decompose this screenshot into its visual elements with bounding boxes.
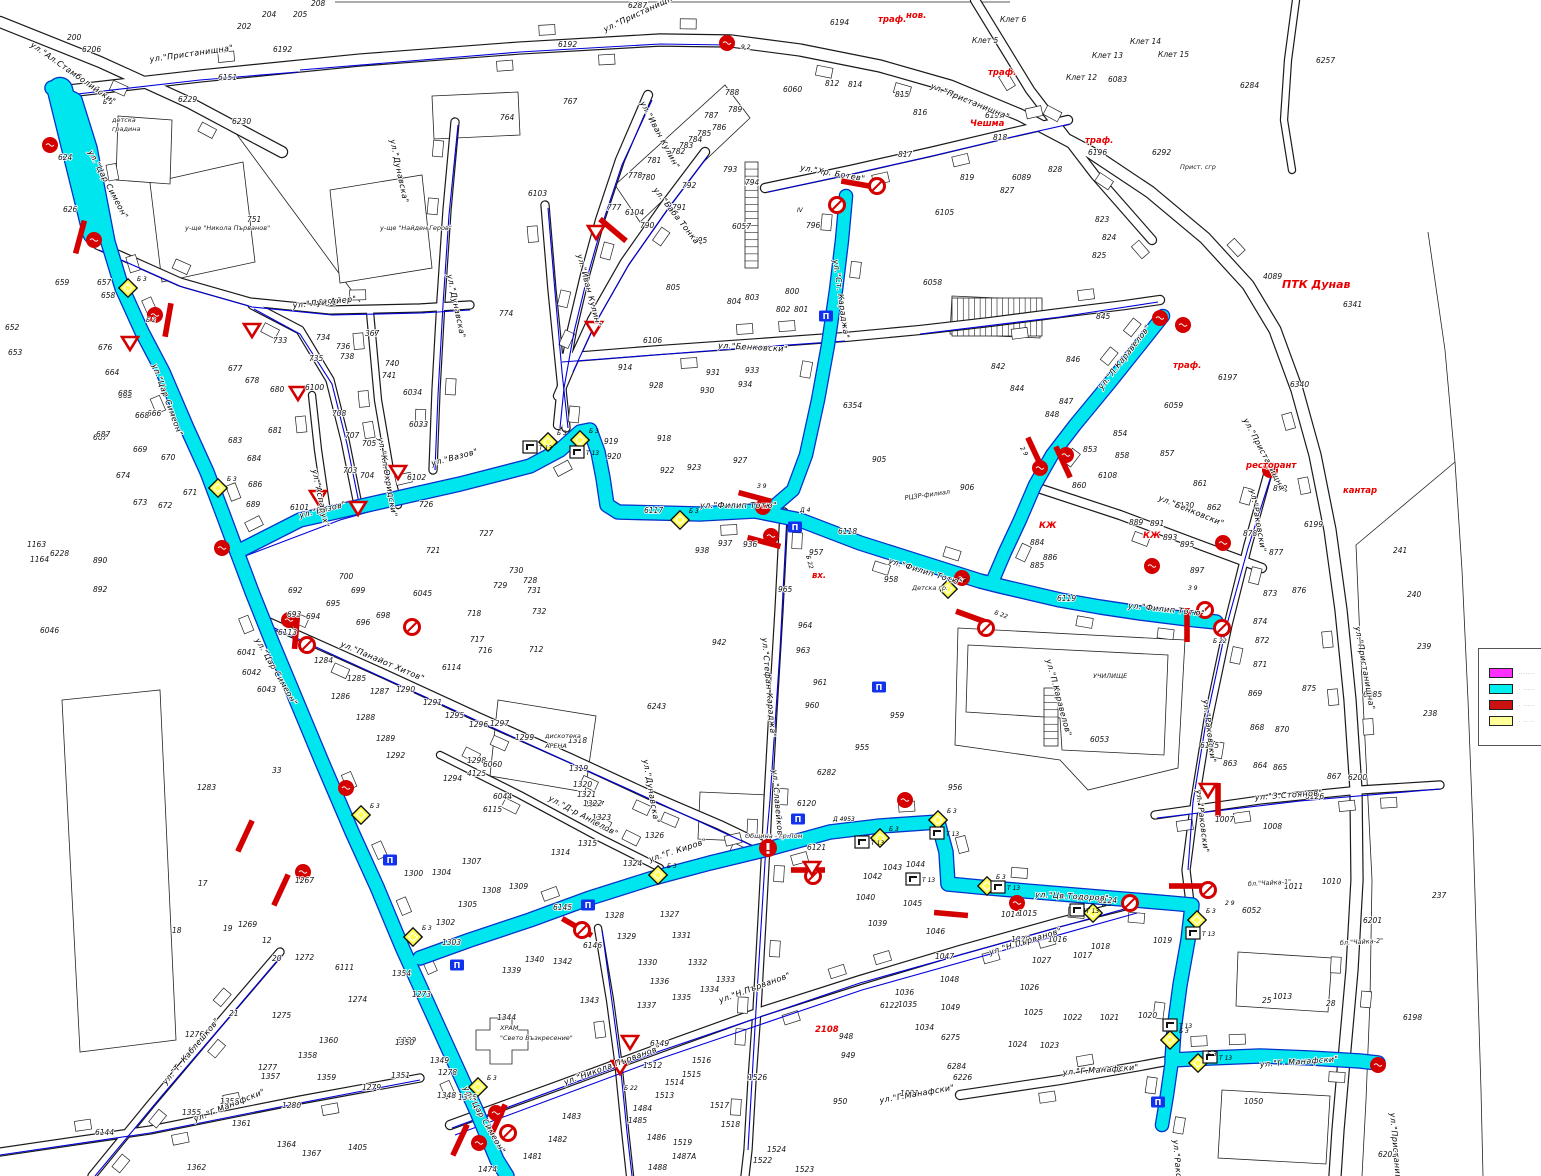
parcel-number: 1300 xyxy=(404,869,423,878)
sign-code-label: Д 4953 xyxy=(832,816,855,823)
warning-sign xyxy=(759,839,777,857)
parcel-number: 1482 xyxy=(548,1135,567,1144)
yield-sign xyxy=(122,337,138,350)
parking-sign: П xyxy=(819,311,833,322)
parcel-number: 12 xyxy=(262,936,272,945)
parcel-number: 1514 xyxy=(665,1078,684,1087)
parcel-number: 927 xyxy=(733,456,748,465)
sign-code-label: Б 3 xyxy=(557,430,567,437)
parking-sign: П xyxy=(872,682,886,693)
red-annotation: кантар xyxy=(1343,486,1377,496)
parcel-number: 1021 xyxy=(1100,1013,1119,1022)
parcel-number: 671 xyxy=(183,488,197,497)
parcel-number: 657 xyxy=(97,278,112,287)
parcel-number: 652 xyxy=(5,323,20,332)
parcel-number: 860 xyxy=(1072,481,1087,490)
red-point-marker xyxy=(471,1135,487,1151)
parking-sign: П xyxy=(383,855,397,866)
parcel-number: 6105 xyxy=(935,208,954,217)
place-note-label: РЦЗР-филиал xyxy=(904,488,950,502)
parcel-number: 6060 xyxy=(483,760,502,769)
parcel-number: 659 xyxy=(55,278,70,287)
buildings-layer xyxy=(74,19,1397,1173)
parcel-number: 6194 xyxy=(830,18,849,27)
sign-code-label: З 9 xyxy=(757,483,767,490)
place-note-label: градина xyxy=(112,125,140,133)
svg-text:Т 13: Т 13 xyxy=(922,877,935,884)
street-name-label: ул."Г.Манафски" xyxy=(878,1083,955,1105)
parcel-number: 1275 xyxy=(272,1011,291,1020)
parcel-number: 1326 xyxy=(645,831,664,840)
parcel-number: 914 xyxy=(618,363,633,372)
parcel-number: 1320 xyxy=(573,780,592,789)
legend-swatch-yellow xyxy=(1489,716,1513,726)
parcel-number: 933 xyxy=(745,366,760,375)
parcel-number: 812 xyxy=(825,79,840,88)
sign-code-label: Б 3 xyxy=(422,925,432,932)
parcel-number: 963 xyxy=(796,646,811,655)
parcel-number: 1267 xyxy=(295,876,314,885)
red-point-marker xyxy=(1370,1057,1386,1073)
parcel-number: 668 xyxy=(135,411,150,420)
parcel-number: 1357 xyxy=(261,1072,280,1081)
svg-text:П: П xyxy=(387,856,394,865)
parcel-number: 1359 xyxy=(317,1073,336,1082)
red-point-marker xyxy=(763,528,779,544)
yield-sign xyxy=(290,387,306,400)
parcel-number: 204 xyxy=(262,10,277,19)
place-note-label: дискотека xyxy=(544,732,581,740)
svg-text:Т 13: Т 13 xyxy=(1202,931,1215,938)
sign-code-label: Б 3 xyxy=(947,808,957,815)
parcel-number: 796 xyxy=(806,221,821,230)
parcel-number: 1307 xyxy=(462,857,481,866)
parcel-number: 862 xyxy=(1207,503,1222,512)
parcel-number: 6275 xyxy=(941,1033,960,1042)
parcel-number: 6199 xyxy=(1304,520,1323,529)
parcel-number: 673 xyxy=(133,498,148,507)
red-point-marker xyxy=(719,35,735,51)
parcel-number: 1328 xyxy=(605,911,624,920)
sign-code-label: Б 22 xyxy=(1213,638,1227,645)
parcel-number: 964 xyxy=(798,621,813,630)
sign-code-label: Б 3 xyxy=(667,863,677,870)
parcel-number: 677 xyxy=(228,364,243,373)
sign-code-label: Б 3 xyxy=(689,508,699,515)
parcel-number: 6151 xyxy=(218,73,237,82)
parcel-number: 676 xyxy=(98,343,113,352)
parcel-number: 728 xyxy=(523,576,538,585)
parcel-number: 958 xyxy=(884,575,899,584)
parcel-number: 1337 xyxy=(637,1001,656,1010)
parcel-number: 6119 xyxy=(1057,594,1076,603)
parcel-number: 1017 xyxy=(1073,951,1092,960)
parcel-number: 891 xyxy=(1150,519,1164,528)
sign-code-label: Б 22 xyxy=(624,1085,638,1092)
parcel-number: 717 xyxy=(470,635,485,644)
place-note-label: бл."Чайка-2" xyxy=(1340,937,1384,947)
parcel-number: 33 xyxy=(272,766,282,775)
parcel-number: 751 xyxy=(247,215,261,224)
parcel-number: 707 xyxy=(345,431,360,440)
parcel-number: 1274 xyxy=(348,995,367,1004)
place-note-label: Прист. сгр xyxy=(1180,163,1216,171)
sign-code-label: Б 3 xyxy=(137,276,147,283)
parcel-number: 955 xyxy=(855,743,870,752)
parcel-number: 1340 xyxy=(525,955,544,964)
parcel-number: 877 xyxy=(1269,548,1284,557)
sign-code-label: 9 2 xyxy=(741,44,751,51)
parcel-number: 6043 xyxy=(257,685,276,694)
parking-sign: П xyxy=(581,900,595,911)
parcel-number: 678 xyxy=(245,376,260,385)
parcel-number: 1343 xyxy=(580,996,599,1005)
parcel-number: 708 xyxy=(332,409,347,418)
parcel-number: 1023 xyxy=(1040,1041,1059,1050)
parcel-number: 1015 xyxy=(1018,909,1037,918)
red-annotation: траф. xyxy=(988,68,1016,78)
parcel-number: 202 xyxy=(237,22,252,31)
parcel-number: 736 xyxy=(336,342,351,351)
parcel-number: 1322 xyxy=(583,799,602,808)
street-name-label: ул."Пристанищна" xyxy=(1388,1111,1404,1176)
parcel-number: 869 xyxy=(1248,689,1263,698)
parcel-number: 1361 xyxy=(232,1119,251,1128)
parcel-number: 6053 xyxy=(1090,735,1109,744)
legend-swatch-cyan xyxy=(1489,684,1513,694)
svg-text:Т 13: Т 13 xyxy=(586,450,599,457)
parcel-number: 1287 xyxy=(370,687,389,696)
parcel-number: 804 xyxy=(727,297,742,306)
parcel-number: 1008 xyxy=(1263,822,1282,831)
parcel-number: 6083 xyxy=(1108,75,1127,84)
parcel-number: 1339 xyxy=(502,966,521,975)
parcel-number: 790 xyxy=(640,221,655,230)
parcel-number: 6229 xyxy=(178,95,197,104)
no-entry-sign xyxy=(501,1126,516,1141)
parcel-number: 861 xyxy=(1193,479,1207,488)
parcel-number: 774 xyxy=(499,309,514,318)
legend-swatch-red xyxy=(1489,700,1513,710)
parcel-number: 672 xyxy=(158,501,173,510)
place-note-label: у-ще "Найден Геров" xyxy=(379,224,452,232)
parcel-number: 823 xyxy=(1095,215,1110,224)
parcel-number: 1295 xyxy=(445,711,464,720)
parcel-number: 6121 xyxy=(807,843,826,852)
parcel-number: 19 xyxy=(223,924,233,933)
parcel-number: 842 xyxy=(991,362,1006,371)
parcel-number: 1044 xyxy=(906,860,925,869)
sign-code-label: Б 3 xyxy=(370,803,380,810)
parcel-number: 718 xyxy=(467,609,482,618)
legend-label: ······· xyxy=(1519,671,1535,676)
place-note-label: Община - гр.Лом xyxy=(745,832,803,840)
parcel-number: 6058 xyxy=(923,278,942,287)
parcel-number: 6041 xyxy=(237,648,256,657)
parcel-number: 868 xyxy=(1250,723,1265,732)
parcel-number: Клет 5 xyxy=(972,36,998,45)
parcel-number: 6034 xyxy=(403,388,422,397)
parcel-number: 734 xyxy=(316,333,331,342)
parcel-number: 6192 xyxy=(558,40,577,49)
parcel-number: Клет 13 xyxy=(1092,51,1123,60)
red-point-marker xyxy=(897,792,913,808)
parcel-number: 1517 xyxy=(710,1101,729,1110)
parcel-number: 653 xyxy=(8,348,23,357)
parcel-number: 6052 xyxy=(1242,906,1261,915)
parcel-number: 670 xyxy=(161,453,176,462)
parcel-number: 658 xyxy=(101,291,116,300)
parcel-number: 1043 xyxy=(883,863,902,872)
parcel-number: 6104 xyxy=(625,208,644,217)
parcel-number: 687 xyxy=(96,430,111,439)
parcel-number: 885 xyxy=(1030,561,1045,570)
parcel-number: 816 xyxy=(913,108,928,117)
parcel-number: 815 xyxy=(895,90,910,99)
parcel-number: 805 xyxy=(666,283,681,292)
parcel-number: 959 xyxy=(890,711,905,720)
parcel-number: 1290 xyxy=(396,685,415,694)
yield-sign xyxy=(622,1036,638,1049)
no-entry-sign xyxy=(575,923,590,938)
parcel-number: 239 xyxy=(1417,642,1432,651)
parcel-number: 792 xyxy=(682,181,697,190)
legend-item-red: · ····· xyxy=(1489,697,1541,713)
parcel-number: 1512 xyxy=(643,1061,662,1070)
parcel-number: 931 xyxy=(706,368,720,377)
parcel-number: 6057 xyxy=(732,222,751,231)
parcel-number: 6113 xyxy=(278,628,297,637)
parcel-number: 824 xyxy=(1102,233,1117,242)
t13-sign: Т 13 xyxy=(1186,927,1215,939)
parcel-number: 6100 xyxy=(305,383,324,392)
legend-swatch-magenta xyxy=(1489,668,1513,678)
parcel-number: 864 xyxy=(1253,761,1268,770)
parcel-number: 897 xyxy=(1190,566,1205,575)
parcel-number: 729 xyxy=(493,581,508,590)
red-point-marker xyxy=(86,232,102,248)
parcel-number: 1327 xyxy=(660,910,679,919)
red-annotation: нов. xyxy=(906,11,926,21)
sign-code-label: Б 3 xyxy=(1207,1051,1217,1058)
parcel-number: 793 xyxy=(723,165,738,174)
parcel-number: 669 xyxy=(133,445,148,454)
parcel-number: 794 xyxy=(745,178,760,187)
no-entry-sign xyxy=(979,621,994,636)
parcel-number: 949 xyxy=(841,1051,856,1060)
parcel-number: 240 xyxy=(1407,590,1422,599)
parcel-number: 1486 xyxy=(647,1133,666,1142)
parcel-number: 726 xyxy=(419,500,434,509)
red-point-marker xyxy=(1215,535,1231,551)
parcel-number: 814 xyxy=(848,80,863,89)
parcel-number: 828 xyxy=(1048,165,1063,174)
parcel-number: 1025 xyxy=(1024,1008,1043,1017)
sign-code-label: Д 4 xyxy=(799,507,811,514)
parcel-number: 6108 xyxy=(1098,471,1117,480)
svg-text:П: П xyxy=(795,815,802,824)
parcel-number: 1046 xyxy=(926,927,945,936)
parcel-number: 870 xyxy=(1275,725,1290,734)
parcel-number: 817 xyxy=(898,150,913,159)
parcel-number: 6146 xyxy=(583,941,602,950)
parcel-number: 6117 xyxy=(644,506,663,515)
parcel-number: 1296 xyxy=(469,720,488,729)
red-annotation: КЖ xyxy=(1143,531,1161,541)
parcel-number: 6230 xyxy=(232,117,251,126)
road-closure-bar xyxy=(235,819,254,852)
parcel-number: 1007 xyxy=(1215,815,1234,824)
parcel-number: 895 xyxy=(1180,540,1195,549)
parcel-number: 928 xyxy=(649,381,664,390)
sign-code-label: Б 3 xyxy=(889,826,899,833)
parcel-number: 865 xyxy=(1273,763,1288,772)
parcel-number: 1304 xyxy=(432,868,451,877)
parcel-number: 664 xyxy=(105,368,120,377)
no-entry-sign xyxy=(405,620,420,635)
parcel-number: 6196 xyxy=(1088,148,1107,157)
red-annotation: Чешма xyxy=(970,119,1005,129)
no-entry-sign xyxy=(870,179,885,194)
place-note-label: у-ще "Никола Първанов" xyxy=(184,224,270,232)
parcel-number: 767 xyxy=(563,97,578,106)
parcel-number: 735 xyxy=(309,354,324,363)
parcel-number: 6292 xyxy=(1152,148,1171,157)
parcel-number: 1042 xyxy=(863,872,882,881)
parcel-number: 1292 xyxy=(386,751,405,760)
parcel-number: 956 xyxy=(948,783,963,792)
parcel-number: 6033 xyxy=(409,420,428,429)
parcel-number: 1018 xyxy=(1091,942,1110,951)
parcel-number: 1019 xyxy=(1153,936,1172,945)
parcel-number: 1364 xyxy=(277,1140,296,1149)
red-point-marker xyxy=(1058,447,1074,463)
parcel-number: 6282 xyxy=(817,768,836,777)
parcel-number: 698 xyxy=(376,611,391,620)
parcel-number: 1284 xyxy=(314,656,333,665)
parking-sign: П xyxy=(788,522,802,533)
parcel-number: 6111 xyxy=(335,963,354,972)
parcel-number: 1048 xyxy=(940,975,959,984)
parcel-number: 681 xyxy=(268,426,282,435)
svg-text:Т 13: Т 13 xyxy=(1219,1055,1232,1062)
parcel-number: 858 xyxy=(1115,451,1130,460)
parcel-number: 1354 xyxy=(392,969,411,978)
parcel-number: 1163 xyxy=(27,540,46,549)
parcel-number: 1344 xyxy=(497,1013,516,1022)
svg-text:Т 13: Т 13 xyxy=(1086,908,1099,915)
parcel-number: 237 xyxy=(1432,891,1447,900)
sign-code-label: Б 3 xyxy=(1179,1028,1189,1035)
parcel-number: 712 xyxy=(529,645,544,654)
parcel-number: 1518 xyxy=(721,1120,740,1129)
red-point-marker xyxy=(214,540,230,556)
parcel-number: 1027 xyxy=(1032,956,1051,965)
parcel-number: 1288 xyxy=(356,713,375,722)
parcel-number: 1349 xyxy=(430,1056,449,1065)
no-entry-sign xyxy=(830,198,845,213)
parcel-number: 853 xyxy=(1083,445,1098,454)
parcel-number: 906 xyxy=(960,483,975,492)
parcel-number: Клет 12 xyxy=(1066,73,1097,82)
parcel-number: 871 xyxy=(1253,660,1267,669)
parcel-number: 1358 xyxy=(298,1051,317,1060)
parcel-number: 1329 xyxy=(617,932,636,941)
road-closure-bar xyxy=(934,910,968,919)
parcel-number: 1515 xyxy=(682,1070,701,1079)
parcel-number: 727 xyxy=(479,529,494,538)
yield-sign xyxy=(244,324,260,337)
parcel-number: 1010 xyxy=(1322,877,1341,886)
parcel-number: 844 xyxy=(1010,384,1025,393)
parcel-number: 684 xyxy=(247,454,262,463)
road-closure-bar xyxy=(1169,883,1203,889)
parcel-number: 686 xyxy=(248,480,263,489)
parcel-number: 200 xyxy=(67,33,82,42)
parcel-number: 624 xyxy=(58,153,73,162)
parcel-number: 876 xyxy=(1292,586,1307,595)
svg-text:Т 13: Т 13 xyxy=(946,831,959,838)
parcel-number: 1315 xyxy=(578,839,597,848)
parcel-number: 738 xyxy=(340,352,355,361)
parcel-number: 1034 xyxy=(915,1023,934,1032)
parcel-number: 1367 xyxy=(302,1149,321,1158)
parcel-number: 777 xyxy=(607,203,622,212)
parcel-number: 685 xyxy=(118,389,133,398)
place-note-label: детска xyxy=(111,116,136,124)
parcel-number: 4125 xyxy=(467,769,486,778)
parcel-number: 892 xyxy=(93,585,108,594)
parcel-number: 778 xyxy=(628,171,643,180)
parcel-number: 1283 xyxy=(197,783,216,792)
parcel-number: 721 xyxy=(426,546,440,555)
parcel-number: 1487А xyxy=(672,1152,696,1161)
red-annotation: КЖ xyxy=(1039,521,1057,531)
red-annotation: траф. xyxy=(1173,361,1201,371)
parcel-number: 741 xyxy=(382,371,396,380)
parcel-number: 1483 xyxy=(562,1112,581,1121)
parcel-number: 6284 xyxy=(1240,81,1259,90)
parcel-number: 6114 xyxy=(442,663,461,672)
parcel-number: 680 xyxy=(270,385,285,394)
svg-text:Т 13: Т 13 xyxy=(539,445,552,452)
red-point-marker xyxy=(338,780,354,796)
parcel-number: 1519 xyxy=(673,1138,692,1147)
svg-text:Т 13: Т 13 xyxy=(871,840,884,847)
sign-code-label: Б 3 xyxy=(1206,908,1216,915)
parcel-number: 1330 xyxy=(638,958,657,967)
parcel-number: 6046 xyxy=(40,626,59,635)
parcel-number: 1484 xyxy=(633,1104,652,1113)
map-legend: · ···· ······· · ····· · ····· · ·· ·· xyxy=(1478,648,1541,746)
parcel-number: 674 xyxy=(116,471,131,480)
red-point-marker xyxy=(42,137,58,153)
parcel-number: 1035 xyxy=(898,1000,917,1009)
parcel-number: 819 xyxy=(960,173,975,182)
parcel-number: 1280 xyxy=(282,1101,301,1110)
parcel-number: 867 xyxy=(1327,772,1342,781)
parcel-number: 950 xyxy=(833,1097,848,1106)
parcel-number: Клет 14 xyxy=(1130,37,1161,46)
parcel-number: 1362 xyxy=(187,1163,206,1172)
parcel-number: 626 xyxy=(63,205,78,214)
parcel-number: 961 xyxy=(813,678,827,687)
parcel-number: 919 xyxy=(604,437,619,446)
parcel-number: 1526 xyxy=(748,1073,767,1082)
parcel-number: 1481 xyxy=(523,1152,542,1161)
parcel-number: 960 xyxy=(805,701,820,710)
parcel-number: 905 xyxy=(872,455,887,464)
